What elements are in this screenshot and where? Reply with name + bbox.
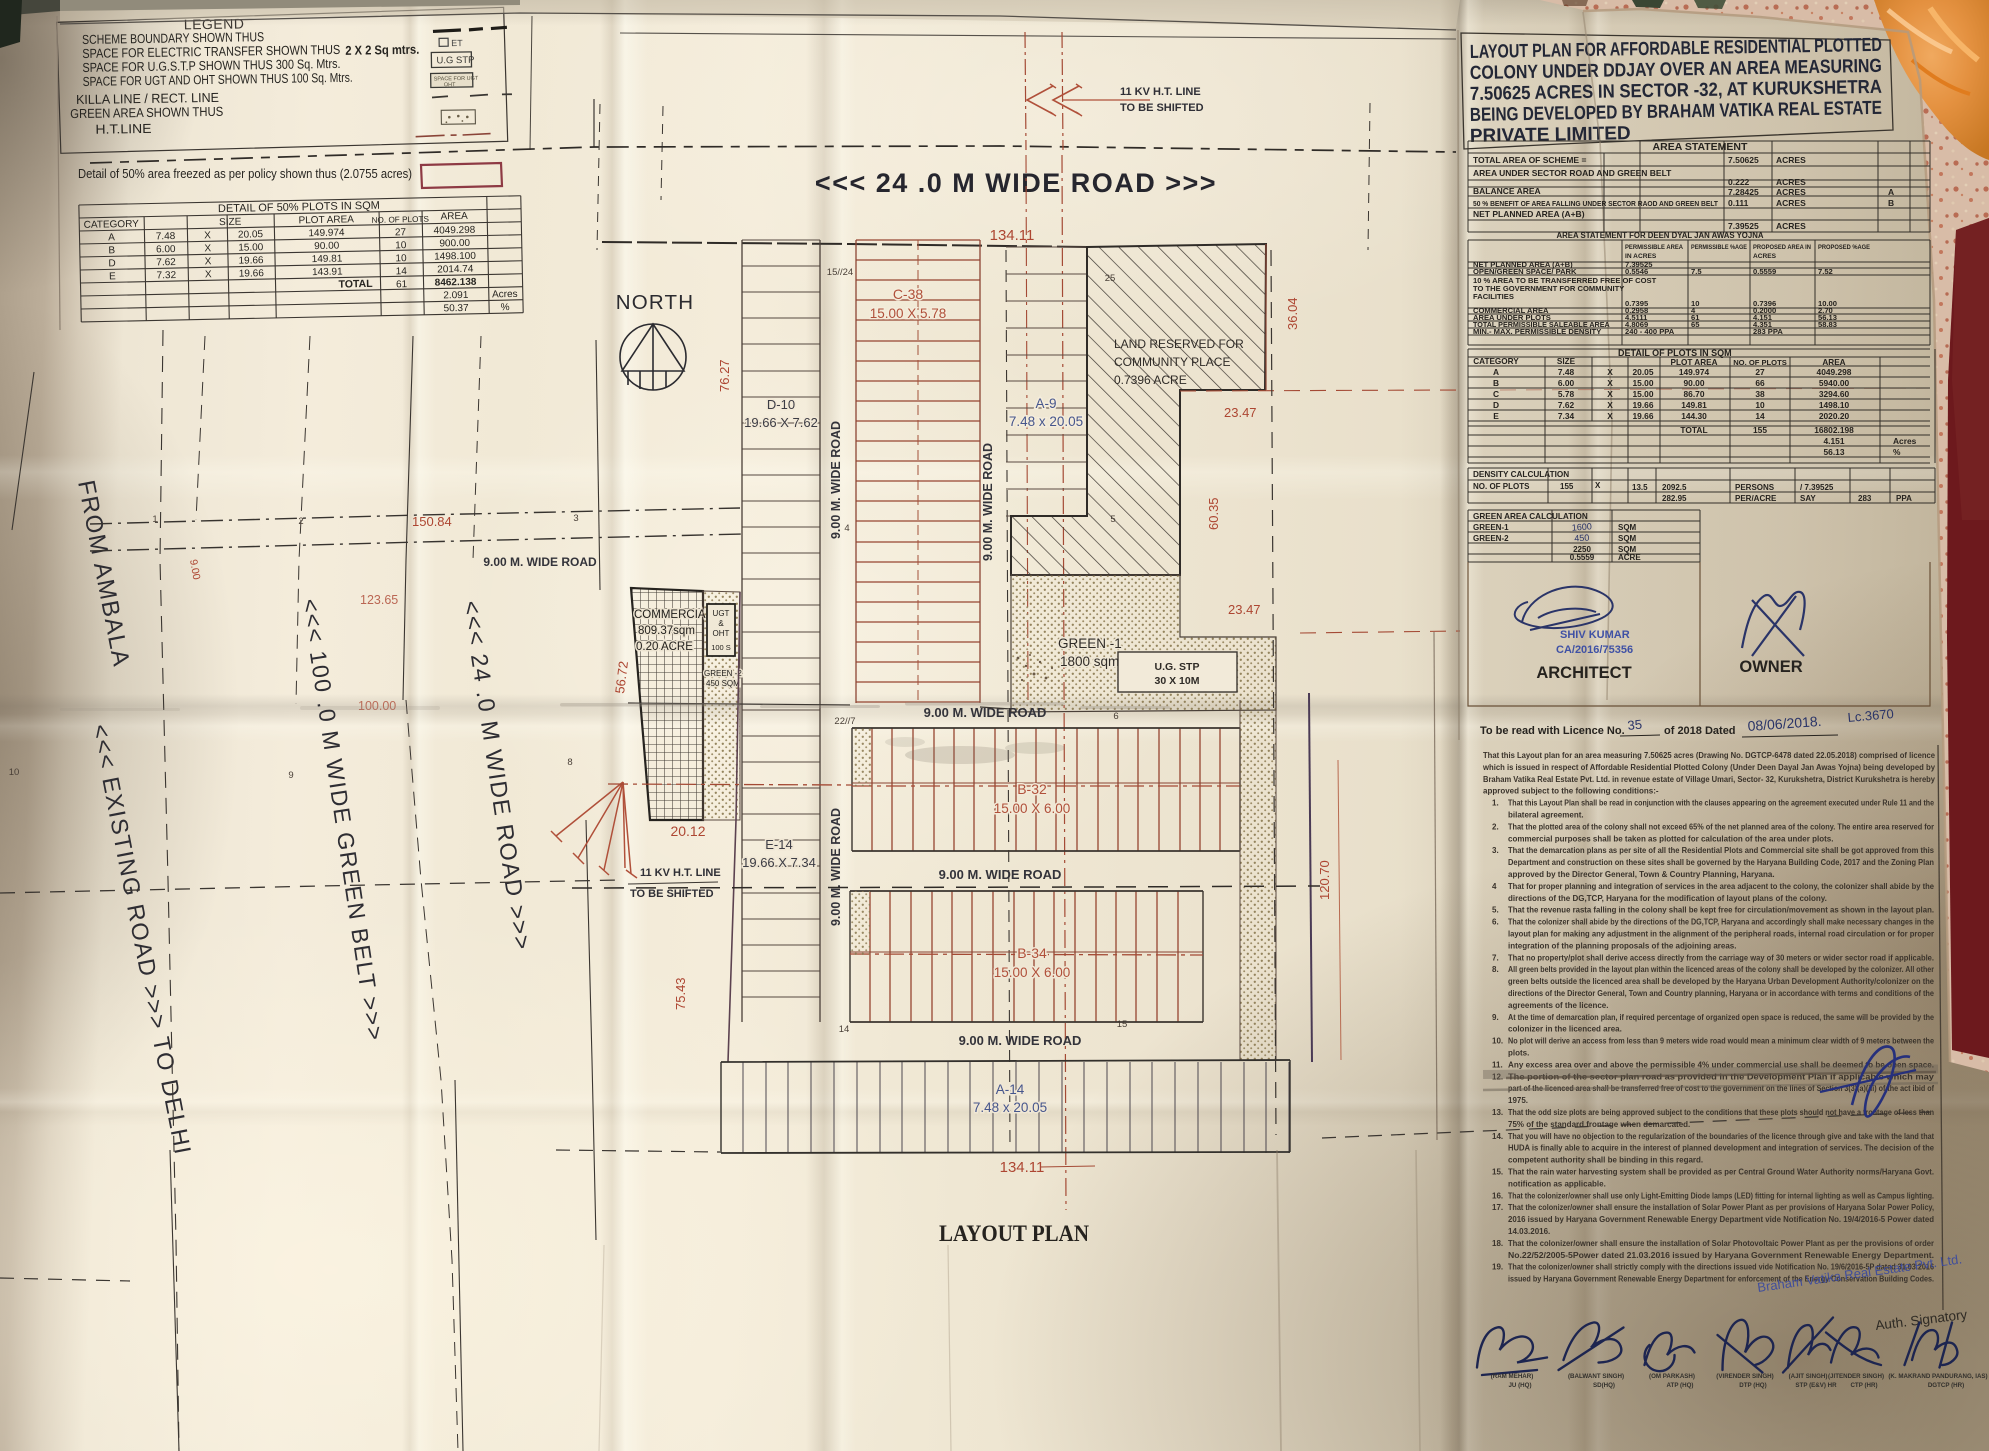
svg-text:bilateral agreement.: bilateral agreement. bbox=[1508, 811, 1584, 820]
svg-text:0.5559: 0.5559 bbox=[1753, 267, 1776, 276]
svg-text:IN ACRES: IN ACRES bbox=[1625, 253, 1657, 260]
svg-text:13.5: 13.5 bbox=[1632, 483, 1648, 492]
svg-text:SQM: SQM bbox=[1618, 534, 1637, 543]
svg-text:7.: 7. bbox=[1492, 953, 1499, 962]
svg-text:20.05: 20.05 bbox=[1633, 367, 1654, 377]
svg-text:MIN.- MAX. PERMISSIBLE DENSITY: MIN.- MAX. PERMISSIBLE DENSITY bbox=[1473, 327, 1601, 336]
svg-text:of 2018 Dated: of 2018 Dated bbox=[1664, 725, 1736, 737]
svg-text:NO. OF PLOTS: NO. OF PLOTS bbox=[1473, 482, 1530, 491]
svg-text:X: X bbox=[1595, 481, 1601, 490]
svg-text:283 PPA: 283 PPA bbox=[1753, 327, 1783, 336]
svg-text:15.: 15. bbox=[1492, 1168, 1503, 1177]
svg-text:(BALWANT SINGH): (BALWANT SINGH) bbox=[1568, 1373, 1624, 1380]
svg-text:PLOT AREA: PLOT AREA bbox=[1670, 358, 1717, 367]
svg-text:SQM: SQM bbox=[1618, 523, 1637, 532]
svg-text:ACRES: ACRES bbox=[1776, 198, 1806, 208]
svg-text:450: 450 bbox=[1574, 532, 1590, 543]
svg-text:That the plotted area of the c: That the plotted area of the colony shal… bbox=[1508, 822, 1934, 831]
svg-text:5.: 5. bbox=[1492, 906, 1499, 915]
svg-text:10: 10 bbox=[1755, 400, 1765, 410]
svg-text:282.95: 282.95 bbox=[1662, 494, 1687, 503]
svg-text:4: 4 bbox=[1492, 882, 1497, 891]
svg-text:That this Layout Plan shall be: That this Layout Plan shall be read in c… bbox=[1508, 799, 1934, 808]
svg-text:240 - 400 PPA: 240 - 400 PPA bbox=[1625, 327, 1675, 336]
svg-text:competent authority shall be b: competent authority shall be binding in … bbox=[1508, 1156, 1703, 1165]
svg-text:CA/2016/75356: CA/2016/75356 bbox=[1556, 644, 1633, 656]
svg-text:ATP (HQ): ATP (HQ) bbox=[1667, 1382, 1694, 1389]
svg-text:0.222: 0.222 bbox=[1728, 177, 1750, 187]
svg-text:At the time of demarcation pla: At the time of demarcation plan, if requ… bbox=[1508, 1013, 1934, 1022]
svg-text:ACRES: ACRES bbox=[1776, 187, 1806, 197]
svg-text:2016 issued by Haryana Governm: 2016 issued by Haryana Government Renewa… bbox=[1508, 1215, 1934, 1224]
svg-text:155: 155 bbox=[1753, 425, 1767, 435]
svg-text:ACRES: ACRES bbox=[1776, 177, 1806, 187]
svg-text:11.: 11. bbox=[1492, 1060, 1503, 1069]
svg-text:AREA STATEMENT: AREA STATEMENT bbox=[1653, 141, 1748, 153]
svg-text:FACILITIES: FACILITIES bbox=[1473, 292, 1514, 301]
svg-text:14.03.2016.: 14.03.2016. bbox=[1508, 1227, 1550, 1236]
svg-text:ACRE: ACRE bbox=[1618, 553, 1641, 562]
svg-text:35: 35 bbox=[1627, 717, 1643, 733]
svg-text:7.52: 7.52 bbox=[1818, 267, 1833, 276]
svg-text:65: 65 bbox=[1691, 320, 1700, 329]
svg-text:10.: 10. bbox=[1492, 1037, 1503, 1046]
svg-text:5940.00: 5940.00 bbox=[1819, 378, 1850, 388]
svg-text:(K. MAKRAND PANDURANG, IAS): (K. MAKRAND PANDURANG, IAS) bbox=[1888, 1373, 1987, 1380]
svg-text:green belts outside the licenc: green belts outside the licenced area sh… bbox=[1508, 977, 1935, 986]
svg-text:1600: 1600 bbox=[1571, 521, 1592, 532]
svg-text:%: % bbox=[1893, 447, 1901, 457]
svg-text:That the colonizer/owner shall: That the colonizer/owner shall ensure th… bbox=[1508, 1203, 1934, 1212]
svg-text:approved subject to the follow: approved subject to the following condit… bbox=[1483, 787, 1659, 796]
svg-text:That the demarcation plans as: That the demarcation plans as per site o… bbox=[1508, 846, 1935, 855]
svg-text:7.39525: 7.39525 bbox=[1728, 221, 1759, 231]
svg-text:SD(HQ): SD(HQ) bbox=[1593, 1382, 1615, 1389]
svg-text:6.: 6. bbox=[1492, 918, 1499, 927]
svg-text:14: 14 bbox=[1755, 411, 1765, 421]
svg-text:ACRES: ACRES bbox=[1776, 221, 1806, 231]
svg-text:Department and construction on: Department and construction on these sit… bbox=[1508, 858, 1934, 867]
svg-text:4049.298: 4049.298 bbox=[1817, 367, 1852, 377]
svg-text:Lc.3670: Lc.3670 bbox=[1847, 706, 1894, 725]
svg-text:56.13: 56.13 bbox=[1824, 447, 1845, 457]
svg-text:B: B bbox=[1493, 378, 1499, 388]
svg-text:149.974: 149.974 bbox=[1679, 367, 1710, 377]
svg-text:DGTCP (HR): DGTCP (HR) bbox=[1928, 1382, 1964, 1389]
svg-text:X: X bbox=[1607, 400, 1613, 410]
svg-text:7.28425: 7.28425 bbox=[1728, 187, 1759, 197]
svg-text:7.34: 7.34 bbox=[1558, 411, 1575, 421]
svg-text:ACRES: ACRES bbox=[1753, 253, 1777, 260]
svg-text:0.111: 0.111 bbox=[1728, 198, 1749, 208]
svg-text:OWNER: OWNER bbox=[1739, 658, 1802, 676]
svg-text:That the rain water harvesting: That the rain water harvesting system sh… bbox=[1508, 1168, 1934, 1177]
svg-text:/ 7.39525: / 7.39525 bbox=[1800, 483, 1834, 492]
svg-text:C: C bbox=[1493, 389, 1499, 399]
svg-text:3294.60: 3294.60 bbox=[1819, 389, 1850, 399]
svg-text:X: X bbox=[1607, 367, 1613, 377]
svg-text:2092.5: 2092.5 bbox=[1662, 483, 1687, 492]
svg-text:OPEN/GREEN SPACE/ PARK: OPEN/GREEN SPACE/ PARK bbox=[1473, 267, 1577, 276]
svg-text:approved by the Director Gener: approved by the Director General, Town &… bbox=[1508, 870, 1775, 879]
svg-text:directions of the DG,TCP, Hary: directions of the DG,TCP, Haryana for th… bbox=[1508, 894, 1827, 903]
svg-text:D: D bbox=[1493, 400, 1499, 410]
svg-text:19.66: 19.66 bbox=[1633, 400, 1654, 410]
svg-text:(AJIT SINGH): (AJIT SINGH) bbox=[1789, 1373, 1828, 1380]
svg-text:DTP (HQ): DTP (HQ) bbox=[1739, 1382, 1766, 1389]
svg-text:PROPOSED AREA IN: PROPOSED AREA IN bbox=[1753, 244, 1811, 251]
svg-text:(RAM MEHAR): (RAM MEHAR) bbox=[1491, 1373, 1534, 1380]
svg-text:7.50625: 7.50625 bbox=[1728, 155, 1759, 165]
svg-text:PERSONS: PERSONS bbox=[1735, 483, 1775, 492]
svg-text:PPA: PPA bbox=[1896, 494, 1912, 503]
svg-text:(OM PARKASH): (OM PARKASH) bbox=[1649, 1373, 1695, 1380]
svg-text:38: 38 bbox=[1755, 389, 1765, 399]
svg-text:58.83: 58.83 bbox=[1818, 320, 1837, 329]
svg-text:That this Layout plan for an a: That this Layout plan for an area measur… bbox=[1483, 751, 1936, 760]
svg-text:6.00: 6.00 bbox=[1558, 378, 1575, 388]
svg-text:(VIRENDER SINGH): (VIRENDER SINGH) bbox=[1716, 1373, 1773, 1380]
svg-text:27: 27 bbox=[1755, 367, 1765, 377]
svg-text:08/06/2018.: 08/06/2018. bbox=[1747, 713, 1822, 734]
svg-text:AREA: AREA bbox=[1822, 358, 1845, 367]
svg-text:integration of the planning pr: integration of the planning proposals of… bbox=[1508, 941, 1736, 950]
svg-text:ARCHITECT: ARCHITECT bbox=[1536, 664, 1631, 682]
svg-text:That you will have no objectio: That you will have no objection to the r… bbox=[1508, 1132, 1934, 1141]
svg-text:Acres: Acres bbox=[1893, 436, 1917, 446]
svg-text:SIZE: SIZE bbox=[1557, 357, 1576, 366]
svg-text:155: 155 bbox=[1560, 482, 1574, 491]
svg-text:X: X bbox=[1607, 389, 1613, 399]
svg-text:GREEN-2: GREEN-2 bbox=[1473, 534, 1509, 543]
svg-text:No.22/52/2005-5Power dated 21.: No.22/52/2005-5Power dated 21.03.2016 is… bbox=[1508, 1251, 1934, 1260]
svg-text:That for proper planning and i: That for proper planning and integration… bbox=[1508, 882, 1935, 891]
svg-text:(JITENDER SINGH): (JITENDER SINGH) bbox=[1828, 1373, 1884, 1380]
svg-text:That the colonizer shall abide: That the colonizer shall abide by the di… bbox=[1508, 918, 1934, 927]
svg-text:TOTAL AREA OF SCHEME =: TOTAL AREA OF SCHEME = bbox=[1473, 155, 1586, 165]
svg-text:agreements of the licence.: agreements of the licence. bbox=[1508, 1001, 1608, 1010]
svg-text:PRIVATE LIMITED: PRIVATE LIMITED bbox=[1470, 123, 1631, 147]
svg-text:149.81: 149.81 bbox=[1681, 400, 1707, 410]
svg-text:0.5546: 0.5546 bbox=[1625, 267, 1648, 276]
svg-text:commercial purposes shall be t: commercial purposes shall be taken as pl… bbox=[1508, 834, 1833, 843]
svg-text:GREEN AREA CALCULATION: GREEN AREA CALCULATION bbox=[1473, 512, 1588, 521]
svg-text:Braham Vatika Real Estate Pvt.: Braham Vatika Real Estate Pvt. Ltd. in r… bbox=[1483, 775, 1936, 784]
svg-text:notification as applicable.: notification as applicable. bbox=[1508, 1179, 1606, 1188]
svg-text:75% of the standard frontage w: 75% of the standard frontage when demarc… bbox=[1508, 1120, 1690, 1129]
svg-text:BALANCE AREA: BALANCE AREA bbox=[1473, 186, 1541, 196]
svg-text:90.00: 90.00 bbox=[1684, 378, 1705, 388]
svg-text:A: A bbox=[1888, 187, 1894, 197]
svg-text:15.00: 15.00 bbox=[1633, 389, 1654, 399]
svg-text:colonizer in the licenced area: colonizer in the licenced area. bbox=[1508, 1025, 1622, 1034]
svg-text:All green belts provided in th: All green belts provided in the layout p… bbox=[1508, 965, 1934, 974]
svg-text:4.151: 4.151 bbox=[1824, 436, 1845, 446]
svg-text:7.62: 7.62 bbox=[1558, 400, 1575, 410]
svg-text:GREEN-1: GREEN-1 bbox=[1473, 523, 1509, 532]
svg-text:14.: 14. bbox=[1492, 1132, 1503, 1141]
svg-text:86.70: 86.70 bbox=[1684, 389, 1705, 399]
svg-text:7.5: 7.5 bbox=[1691, 267, 1702, 276]
svg-text:B: B bbox=[1888, 198, 1894, 208]
svg-text:CATEGORY: CATEGORY bbox=[1473, 357, 1519, 366]
svg-text:DENSITY CALCULATION: DENSITY CALCULATION bbox=[1473, 470, 1569, 479]
svg-text:AREA STATEMENT FOR DEEN DYAL J: AREA STATEMENT FOR DEEN DYAL JAN AWAS YO… bbox=[1557, 231, 1764, 240]
svg-text:STP (E&V) HR: STP (E&V) HR bbox=[1795, 1382, 1837, 1389]
svg-text:plots.: plots. bbox=[1508, 1049, 1529, 1058]
svg-text:TOTAL: TOTAL bbox=[1680, 425, 1707, 435]
svg-text:3.: 3. bbox=[1492, 846, 1499, 855]
svg-text:AREA UNDER SECTOR ROAD AND GRE: AREA UNDER SECTOR ROAD AND GREEN BELT bbox=[1473, 168, 1672, 178]
svg-text:19.: 19. bbox=[1492, 1263, 1503, 1272]
svg-text:2.: 2. bbox=[1492, 822, 1499, 831]
svg-text:Auth. Signatory: Auth. Signatory bbox=[1875, 1307, 1969, 1333]
svg-text:directions of the Director Gen: directions of the Director General, Town… bbox=[1508, 989, 1935, 998]
svg-text:283: 283 bbox=[1858, 494, 1872, 503]
svg-text:13.: 13. bbox=[1492, 1108, 1503, 1117]
svg-text:That the colonizer/owner shall: That the colonizer/owner shall use only … bbox=[1508, 1191, 1934, 1200]
svg-text:15.00: 15.00 bbox=[1633, 378, 1654, 388]
svg-text:144.30: 144.30 bbox=[1681, 411, 1707, 421]
svg-text:NO. OF PLOTS: NO. OF PLOTS bbox=[1733, 358, 1787, 367]
svg-text:PER/ACRE: PER/ACRE bbox=[1735, 494, 1777, 503]
svg-text:To be read with Licence No.: To be read with Licence No. bbox=[1480, 725, 1625, 737]
svg-text:17.: 17. bbox=[1492, 1203, 1503, 1212]
svg-text:ACRES: ACRES bbox=[1776, 155, 1806, 165]
svg-text:1975.: 1975. bbox=[1508, 1096, 1528, 1105]
svg-text:66: 66 bbox=[1755, 378, 1765, 388]
svg-text:DETAIL OF PLOTS IN SQM: DETAIL OF PLOTS IN SQM bbox=[1618, 348, 1732, 358]
svg-text:16.: 16. bbox=[1492, 1191, 1503, 1200]
svg-text:0.5559: 0.5559 bbox=[1570, 553, 1595, 562]
svg-text:7.48: 7.48 bbox=[1558, 367, 1575, 377]
svg-text:A: A bbox=[1493, 367, 1499, 377]
svg-text:1498.10: 1498.10 bbox=[1819, 400, 1850, 410]
svg-text:19.66: 19.66 bbox=[1633, 411, 1654, 421]
svg-text:which is issued in respect of: which is issued in respect of Affordable… bbox=[1482, 763, 1935, 772]
svg-text:X: X bbox=[1607, 378, 1613, 388]
svg-text:2020.20: 2020.20 bbox=[1819, 411, 1850, 421]
svg-text:SHIV KUMAR: SHIV KUMAR bbox=[1560, 629, 1630, 641]
svg-text:E: E bbox=[1493, 411, 1499, 421]
svg-text:That no property/plot shall de: That no property/plot shall derive acces… bbox=[1508, 953, 1934, 962]
svg-text:That the colonizer/owner shall: That the colonizer/owner shall ensure th… bbox=[1508, 1239, 1934, 1248]
svg-text:HUDA is finally able to acquir: HUDA is finally able to acquire in the i… bbox=[1508, 1144, 1935, 1153]
svg-text:1.: 1. bbox=[1492, 799, 1499, 808]
svg-text:18.: 18. bbox=[1492, 1239, 1503, 1248]
svg-text:X: X bbox=[1607, 411, 1613, 421]
svg-text:8.: 8. bbox=[1492, 965, 1499, 974]
svg-text:5.78: 5.78 bbox=[1558, 389, 1575, 399]
svg-text:NET PLANNED AREA (A+B): NET PLANNED AREA (A+B) bbox=[1473, 209, 1585, 219]
svg-text:PROPOSED %AGE: PROPOSED %AGE bbox=[1818, 244, 1871, 251]
svg-text:PERMISSIBLE AREA: PERMISSIBLE AREA bbox=[1625, 244, 1683, 251]
svg-text:SAY: SAY bbox=[1800, 494, 1816, 503]
svg-text:layout plan for making any adj: layout plan for making any adjustment in… bbox=[1508, 930, 1934, 939]
svg-text:16802.198: 16802.198 bbox=[1814, 425, 1854, 435]
svg-text:No plot will derive an access: No plot will derive an access from less … bbox=[1508, 1037, 1934, 1046]
svg-text:That the revenue rasta falling: That the revenue rasta falling in the co… bbox=[1508, 906, 1934, 915]
svg-text:50 % BENEFIT OF AREA FALLING U: 50 % BENEFIT OF AREA FALLING UNDER SECTO… bbox=[1473, 199, 1718, 208]
svg-text:JU (HQ): JU (HQ) bbox=[1508, 1382, 1531, 1389]
svg-text:PERMISSIBLE %AGE: PERMISSIBLE %AGE bbox=[1691, 244, 1748, 251]
svg-text:9.: 9. bbox=[1492, 1013, 1499, 1022]
svg-text:CTP (HR): CTP (HR) bbox=[1850, 1382, 1877, 1389]
